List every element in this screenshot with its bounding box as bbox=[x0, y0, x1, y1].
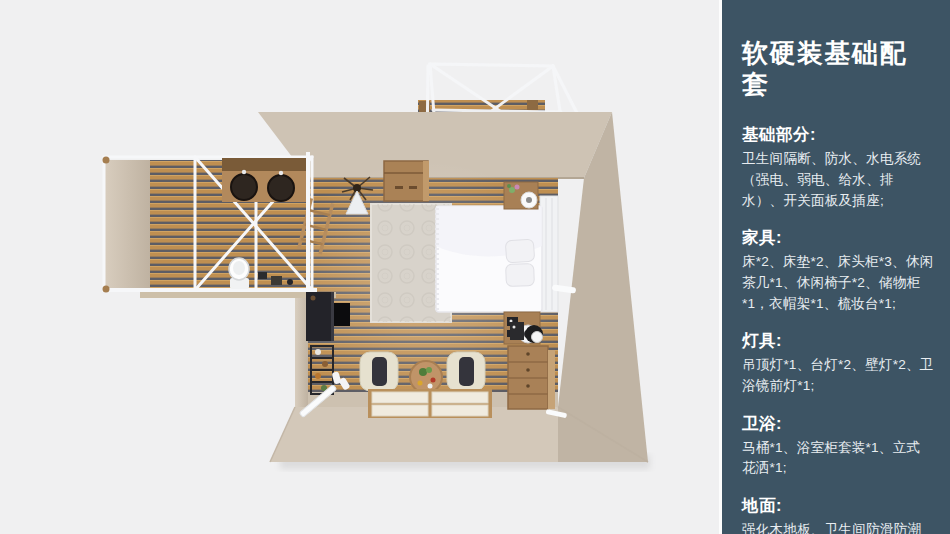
sink-basin bbox=[268, 175, 294, 201]
section-furniture: 家具: 床*2、床垫*2、床头柜*3、休闲茶几*1、休闲椅子*2、储物柜*1，衣… bbox=[742, 227, 934, 314]
section-body: 床*2、床垫*2、床头柜*3、休闲茶几*1、休闲椅子*2、储物柜*1，衣帽架*1… bbox=[742, 252, 934, 314]
faucet bbox=[279, 171, 283, 175]
section-flooring: 地面: 强化木地板、卫生间防滑防潮石塑板; bbox=[742, 495, 934, 534]
sink-basin bbox=[231, 174, 257, 200]
floor-mats bbox=[368, 389, 492, 418]
bathroom-area bbox=[102, 157, 336, 299]
lounge-chair-right bbox=[447, 352, 485, 391]
nightstand-top bbox=[504, 182, 538, 209]
dresser bbox=[508, 346, 555, 409]
frame-post bbox=[306, 152, 310, 292]
section-heading: 基础部分: bbox=[742, 124, 934, 146]
pillow bbox=[506, 264, 535, 287]
toilet bbox=[229, 258, 249, 289]
shower-zone bbox=[105, 160, 150, 290]
info-panel: 软硬装基础配套 基础部分: 卫生间隔断、防水、水电系统（强电、弱电、给水、排水）… bbox=[719, 0, 950, 534]
storage-cabinet bbox=[384, 161, 429, 201]
section-body: 强化木地板、卫生间防滑防潮石塑板; bbox=[742, 520, 934, 534]
section-heading: 卫浴: bbox=[742, 413, 934, 435]
section-heading: 灯具: bbox=[742, 330, 934, 352]
section-body: 马桶*1、浴室柜套装*1、立式花洒*1; bbox=[742, 438, 934, 479]
desk-chair bbox=[334, 303, 350, 326]
deck-post bbox=[527, 100, 538, 111]
faucet bbox=[242, 170, 246, 174]
pillow bbox=[505, 239, 534, 263]
double-sink-vanity bbox=[222, 158, 310, 202]
panel-title: 软硬装基础配套 bbox=[742, 38, 934, 100]
section-body: 吊顶灯*1、台灯*2、壁灯*2、卫浴镜前灯*1; bbox=[742, 355, 934, 396]
bed bbox=[436, 196, 558, 312]
section-heading: 家具: bbox=[742, 227, 934, 249]
section-basic: 基础部分: 卫生间隔断、防水、水电系统（强电、弱电、给水、排水）、开关面板及插座… bbox=[742, 124, 934, 211]
floorplan-render bbox=[0, 0, 722, 534]
lounge-chair-left bbox=[360, 352, 398, 391]
section-lighting: 灯具: 吊顶灯*1、台灯*2、壁灯*2、卫浴镜前灯*1; bbox=[742, 330, 934, 396]
slide-canvas: 软硬装基础配套 基础部分: 卫生间隔断、防水、水电系统（强电、弱电、给水、排水）… bbox=[0, 0, 950, 534]
coffee-table bbox=[410, 361, 442, 393]
section-bathroom: 卫浴: 马桶*1、浴室柜套装*1、立式花洒*1; bbox=[742, 413, 934, 479]
section-heading: 地面: bbox=[742, 495, 934, 517]
section-body: 卫生间隔断、防水、水电系统（强电、弱电、给水、排水）、开关面板及插座; bbox=[742, 149, 934, 211]
